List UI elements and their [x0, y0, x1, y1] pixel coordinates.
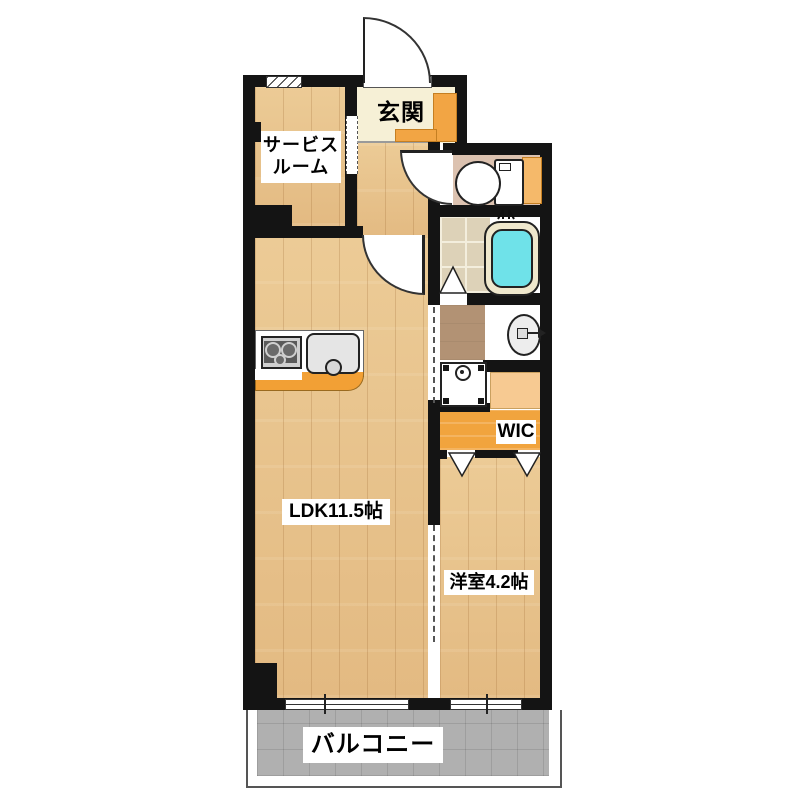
service-room-window	[266, 76, 302, 88]
wic-folding-door-left-icon	[447, 451, 477, 484]
ldk-balcony-window	[285, 699, 409, 710]
stove-burner-icon	[274, 354, 286, 366]
wic-label: WIC	[496, 420, 536, 444]
wall-toilet-top	[443, 143, 552, 155]
wall-right	[540, 143, 552, 710]
wall-service-room-bottom-right	[292, 226, 363, 238]
sink-drain-icon	[325, 359, 342, 376]
pan-corner-icon	[443, 398, 449, 404]
western-room-label: 洋室4.2帖	[444, 570, 534, 595]
washbasin-arrow-icon	[538, 328, 546, 338]
window-mullion-tick	[324, 694, 326, 714]
balcony-label: バルコニー	[303, 727, 443, 763]
entrance-door-swing-icon	[363, 17, 431, 83]
entrance-label: 玄関	[368, 99, 434, 127]
window-mullion-tick	[486, 694, 488, 714]
bathroom-folding-door-icon	[438, 265, 468, 300]
washer-valve-icon	[455, 365, 471, 381]
wic-folding-door-right-icon	[512, 451, 542, 484]
floorplan: サービス ルーム 玄関 LDK11.5帖 洋室4.2帖 WIC バルコニー	[0, 0, 800, 800]
toilet-flush-button	[499, 163, 511, 171]
sliding-door-pocket	[429, 642, 440, 698]
wall-wic-bottom-left	[428, 450, 447, 459]
stove	[261, 336, 302, 369]
ldk-floor	[255, 238, 428, 698]
pan-corner-icon	[443, 365, 449, 371]
bathtub-faucet-icon	[494, 207, 518, 226]
service-room-opening	[346, 116, 358, 174]
wall-service-room-bottom-left	[243, 205, 292, 238]
bathtub-water	[491, 229, 533, 288]
washing-machine-pan	[440, 362, 487, 407]
service-room-label-line1: サービス	[263, 135, 339, 157]
wall-left	[243, 75, 255, 710]
pan-corner-icon	[478, 398, 484, 404]
washroom-sliding-door	[433, 307, 435, 403]
pan-corner-icon	[478, 365, 484, 371]
toilet-bowl	[455, 161, 501, 206]
wall-toilet-bath	[428, 205, 552, 217]
kitchen-counter-notch	[255, 369, 302, 380]
toilet-cabinet	[522, 157, 542, 204]
wall-ldk-west-divider	[428, 400, 440, 525]
wall-vanity-shelf	[483, 360, 552, 372]
shoe-cabinet-horizontal	[395, 129, 437, 142]
wall-left-pillar	[243, 122, 261, 142]
service-room-label-line2: ルーム	[273, 157, 329, 179]
kitchen-sink	[306, 333, 360, 374]
ldk-label: LDK11.5帖	[282, 499, 390, 525]
laundry-shelf	[490, 372, 542, 409]
washroom-floor	[440, 305, 485, 360]
wall-top-left	[243, 75, 365, 87]
service-room-label: サービス ルーム	[261, 131, 341, 183]
western-room-sliding-door	[433, 525, 435, 642]
